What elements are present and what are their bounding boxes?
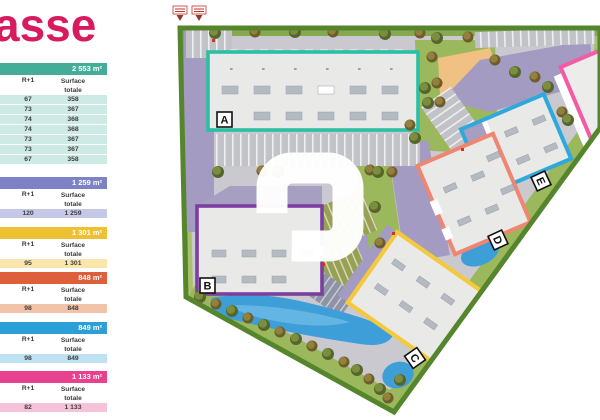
column-surface: Surfacetotale [42,334,104,354]
cell-floor-value: 74 [14,116,42,123]
column-floor: R+1 [14,383,42,403]
table-total-c: 1 301 m² [0,227,107,239]
table-row: 74368 [0,115,107,124]
cell-surface-value: 368 [42,116,104,123]
table-columns-header: R+1Surfacetotale [0,334,107,354]
site-plan-map[interactable]: A B C D E [160,0,600,420]
table-columns-header: R+1Surfacetotale [0,239,107,259]
cell-surface-value: 848 [42,305,104,312]
surface-table-f: 1 133 m²R+1Surfacetotale821 133 [0,371,107,413]
column-floor: R+1 [14,239,42,259]
column-floor: R+1 [14,284,42,304]
cell-floor-value: 95 [14,260,42,267]
entrance-marker [173,6,187,21]
table-row: 73367 [0,145,107,154]
surface-table-a: 2 553 m²R+1Surfacetotale6735873367743687… [0,63,107,165]
column-floor: R+1 [14,189,42,209]
column-surface: Surfacetotale [42,189,104,209]
table-row: 73367 [0,105,107,114]
surface-table-d: 848 m²R+1Surfacetotale98848 [0,272,107,314]
cell-surface-value: 358 [42,156,104,163]
table-row: 67358 [0,155,107,164]
svg-text:B: B [204,281,212,293]
table-columns-header: R+1Surfacetotale [0,189,107,209]
column-floor: R+1 [14,75,42,95]
cell-floor-value: 98 [14,355,42,362]
building-a[interactable] [208,52,418,130]
cell-surface-value: 367 [42,146,104,153]
cell-floor-value: 120 [14,210,42,217]
cell-surface-value: 367 [42,136,104,143]
cell-surface-value: 368 [42,126,104,133]
column-surface: Surfacetotale [42,75,104,95]
column-surface: Surfacetotale [42,284,104,304]
entrance-marker [192,6,206,21]
label-building-b[interactable]: B [200,278,215,293]
table-row: 67358 [0,95,107,104]
column-floor: R+1 [14,334,42,354]
table-row: 98848 [0,304,107,313]
cell-floor-value: 67 [14,96,42,103]
table-columns-header: R+1Surfacetotale [0,284,107,304]
cell-floor-value: 73 [14,146,42,153]
table-total-a: 2 553 m² [0,63,107,75]
surface-table-b: 1 259 m²R+1Surfacetotale1201 259 [0,177,107,219]
table-row: 821 133 [0,403,107,412]
cell-floor-value: 67 [14,156,42,163]
table-row: 98849 [0,354,107,363]
cell-floor-value: 74 [14,126,42,133]
site-plan-page: asse 2 553 m²R+1Surfacetotale67358733677… [0,0,600,420]
table-total-b: 1 259 m² [0,177,107,189]
table-row: 1201 259 [0,209,107,218]
cell-floor-value: 98 [14,305,42,312]
surface-table-e: 849 m²R+1Surfacetotale98849 [0,322,107,364]
cell-floor-value: 73 [14,136,42,143]
surface-table-c: 1 301 m²R+1Surfacetotale951 301 [0,227,107,269]
cell-surface-value: 358 [42,96,104,103]
table-row: 74368 [0,125,107,134]
table-row: 951 301 [0,259,107,268]
table-total-f: 1 133 m² [0,371,107,383]
svg-text:A: A [221,115,229,127]
cell-floor-value: 73 [14,106,42,113]
table-row: 73367 [0,135,107,144]
table-total-d: 848 m² [0,272,107,284]
cell-floor-value: 82 [14,404,42,411]
cell-surface-value: 849 [42,355,104,362]
table-columns-header: R+1Surfacetotale [0,75,107,95]
column-surface: Surfacetotale [42,383,104,403]
label-building-a[interactable]: A [217,112,232,127]
surface-tables: 2 553 m²R+1Surfacetotale6735873367743687… [0,0,108,420]
cell-surface-value: 1 301 [42,260,104,267]
cell-surface-value: 1 259 [42,210,104,217]
cell-surface-value: 367 [42,106,104,113]
cell-surface-value: 1 133 [42,404,104,411]
table-columns-header: R+1Surfacetotale [0,383,107,403]
table-total-e: 849 m² [0,322,107,334]
column-surface: Surfacetotale [42,239,104,259]
